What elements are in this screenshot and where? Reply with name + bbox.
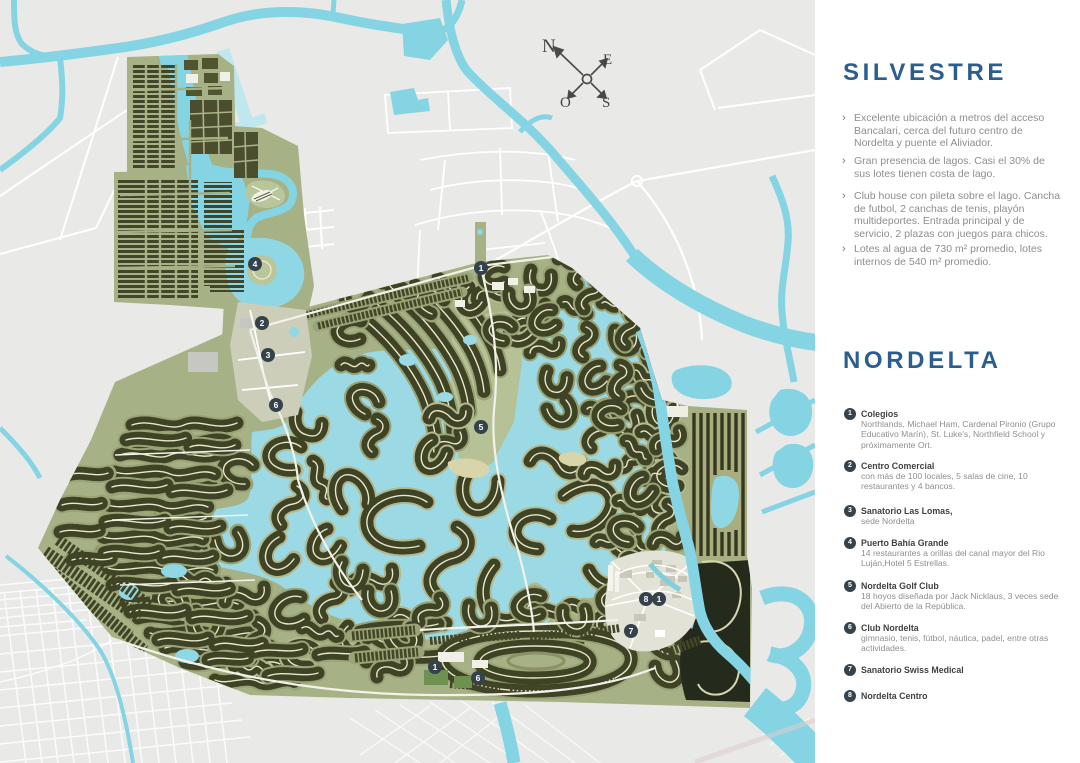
svg-text:O: O: [560, 95, 571, 111]
svg-text:N: N: [542, 36, 556, 57]
svg-text:1: 1: [433, 662, 438, 672]
svg-text:2: 2: [260, 318, 265, 328]
svg-text:1: 1: [479, 263, 484, 273]
svg-text:E: E: [603, 52, 612, 68]
svg-text:8: 8: [644, 594, 649, 604]
svg-text:7: 7: [629, 626, 634, 636]
svg-text:4: 4: [253, 259, 258, 269]
svg-text:1: 1: [657, 594, 662, 604]
svg-text:6: 6: [274, 400, 279, 410]
svg-text:5: 5: [479, 422, 484, 432]
svg-text:S: S: [602, 95, 610, 111]
svg-text:6: 6: [476, 673, 481, 683]
svg-text:3: 3: [266, 350, 271, 360]
